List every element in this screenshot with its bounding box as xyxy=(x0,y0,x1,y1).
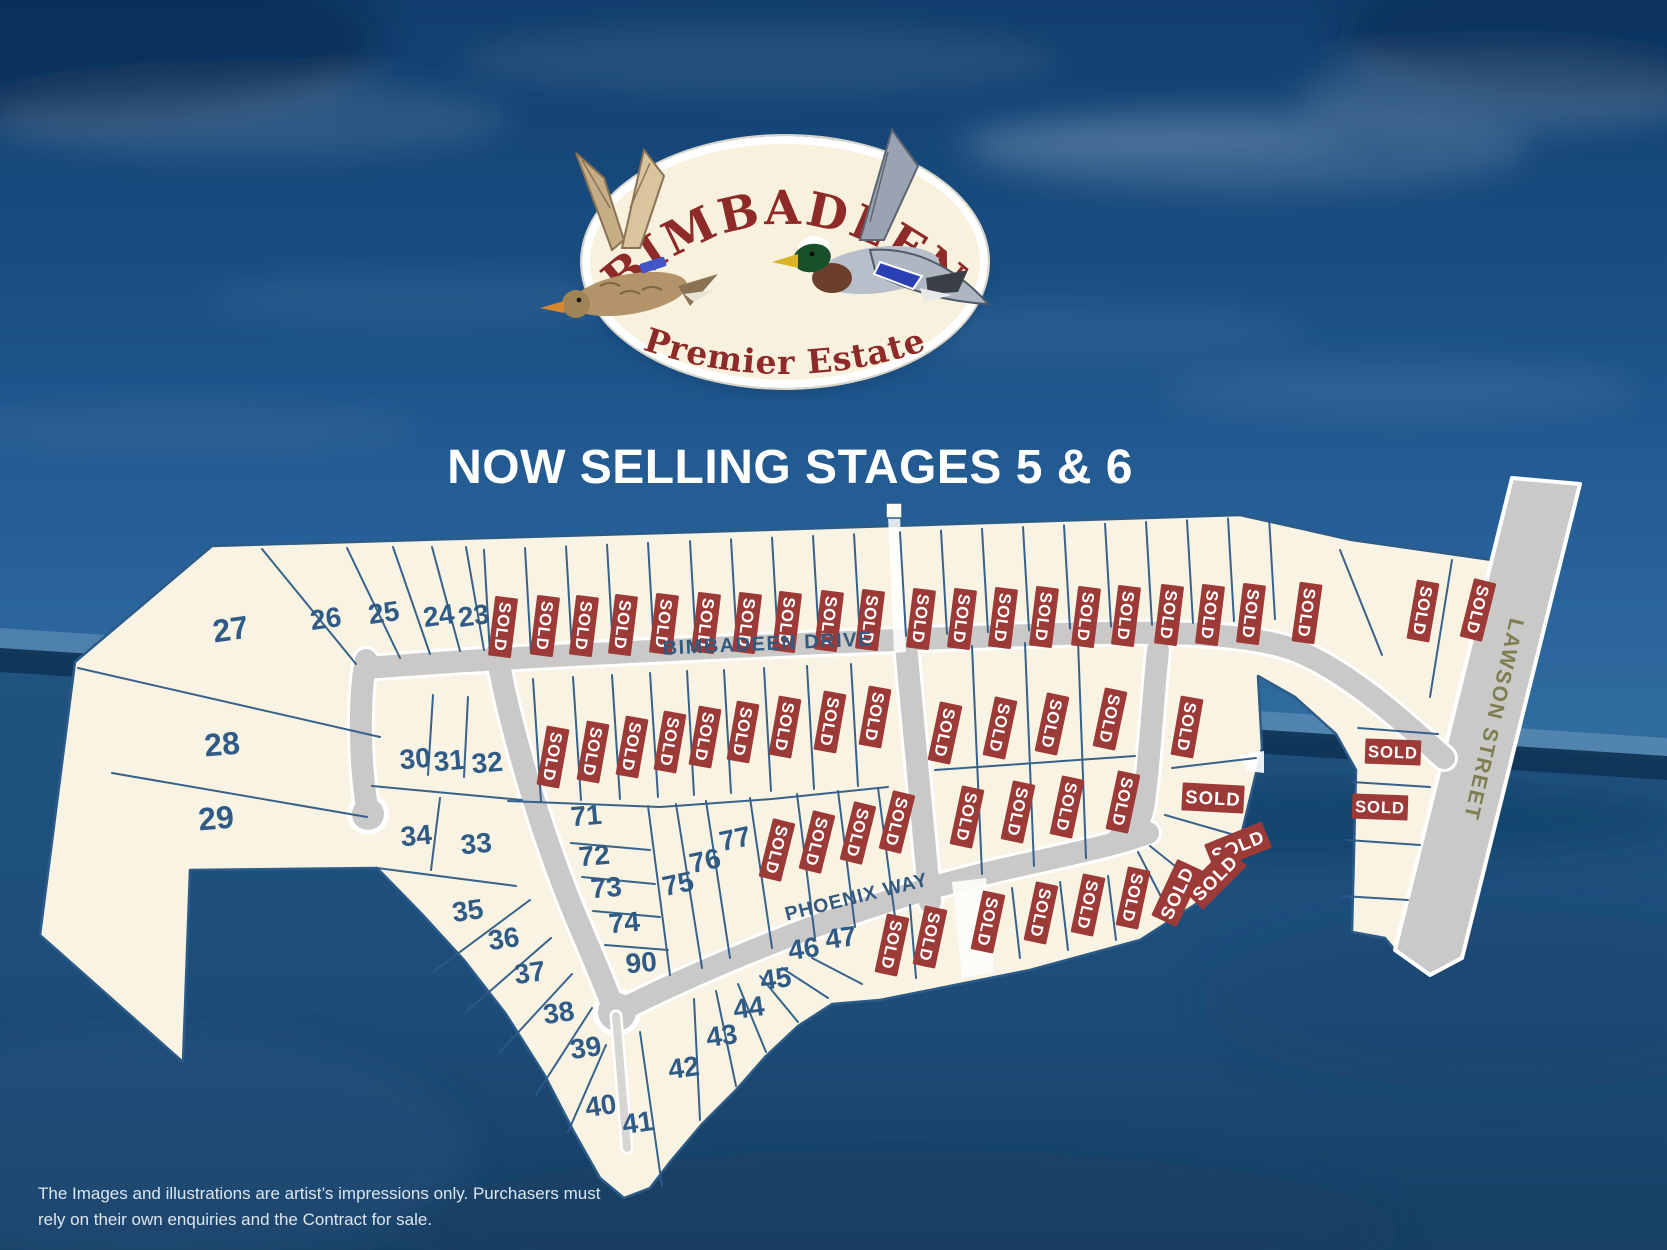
page-title: NOW SELLING STAGES 5 & 6 xyxy=(447,441,1133,494)
lot-number: 37 xyxy=(512,955,547,990)
path-tab xyxy=(886,503,902,518)
lot-number: 23 xyxy=(456,598,491,633)
lot-number: 36 xyxy=(486,921,521,956)
lot-number: 72 xyxy=(577,839,611,873)
lot-number: 29 xyxy=(197,799,236,838)
lot-number: 43 xyxy=(704,1018,739,1053)
lot-number: 26 xyxy=(308,601,343,636)
lot-number: 24 xyxy=(421,598,457,633)
lot-number: 73 xyxy=(589,871,623,905)
lot-number: 90 xyxy=(624,946,658,980)
lot-number: 38 xyxy=(541,995,576,1030)
svg-text:SOLD: SOLD xyxy=(1355,797,1405,818)
sold-badge: SOLD xyxy=(1352,793,1409,820)
lot-number: 31 xyxy=(432,744,466,778)
lot-number: 45 xyxy=(758,961,793,996)
disclaimer-line1: The Images and illustrations are artist’… xyxy=(38,1184,601,1203)
svg-text:SOLD: SOLD xyxy=(1185,786,1241,810)
lot-number: 40 xyxy=(583,1088,618,1123)
lot-number: 27 xyxy=(210,609,250,650)
sold-badge: SOLD xyxy=(1181,782,1244,813)
svg-text:SOLD: SOLD xyxy=(1368,742,1418,763)
lot-number: 42 xyxy=(666,1050,701,1085)
lot-number: 35 xyxy=(450,893,485,928)
lot-number: 74 xyxy=(607,906,641,940)
lot-number: 30 xyxy=(398,742,432,776)
disclaimer-line2: rely on their own enquiries and the Cont… xyxy=(38,1210,432,1229)
lot-number: 34 xyxy=(399,819,433,853)
lot-number: 46 xyxy=(786,931,821,966)
lot-number: 28 xyxy=(203,725,242,764)
lot-number: 77 xyxy=(717,820,754,857)
lot-number: 76 xyxy=(687,842,724,879)
estate-flyer: SOLDSOLDSOLDSOLDSOLDSOLDSOLDSOLDSOLDSOLD… xyxy=(0,0,1667,1250)
lot-number: 32 xyxy=(470,746,504,780)
lot-number: 71 xyxy=(569,799,603,833)
lot-number: 33 xyxy=(459,827,493,861)
lot-number: 47 xyxy=(823,920,858,955)
lot-number: 25 xyxy=(366,595,401,630)
lot-number: 41 xyxy=(620,1105,655,1140)
sold-badge: SOLD xyxy=(1365,738,1422,765)
lot-number: 39 xyxy=(568,1030,603,1065)
